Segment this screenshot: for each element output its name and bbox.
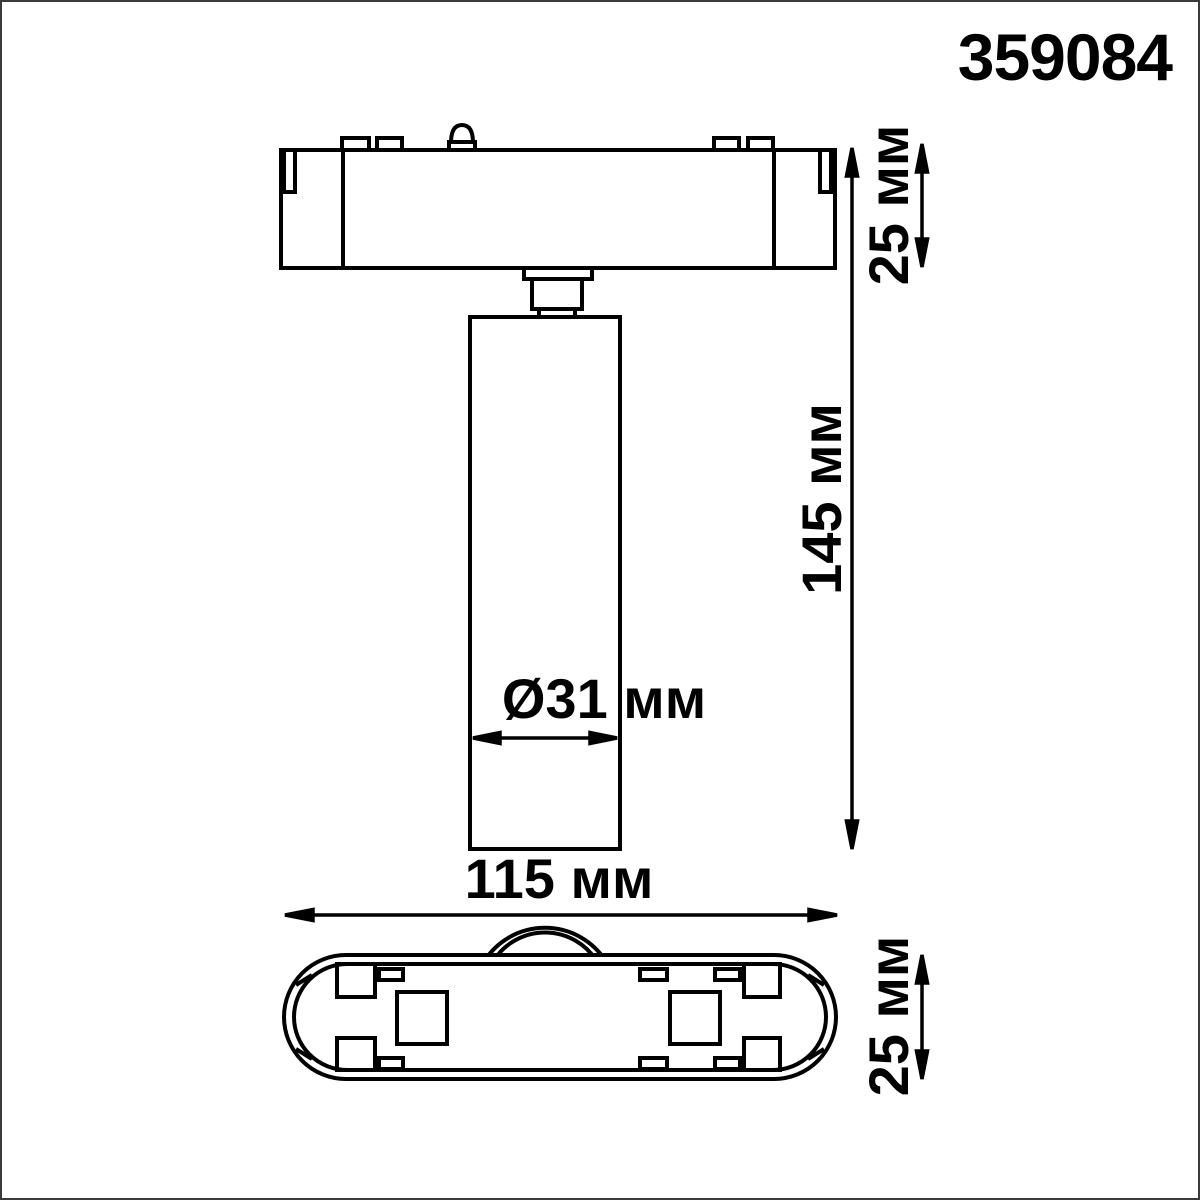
track-left-bracket xyxy=(281,150,343,268)
dimension-base-length xyxy=(285,910,837,921)
base-outline-outer xyxy=(284,955,836,1079)
dim-label-fixture-height: 145 мм xyxy=(794,379,850,619)
product-code: 359084 xyxy=(958,24,1172,90)
connector-block xyxy=(532,279,582,309)
diagram-canvas: 359084 25 мм 145 мм Ø31 мм 115 мм 25 мм xyxy=(0,0,1200,1200)
technical-drawing xyxy=(2,2,1200,1200)
dim-label-base-height: 25 мм xyxy=(861,916,917,1116)
track-right-bracket xyxy=(774,150,835,268)
cylinder-body xyxy=(470,317,620,849)
arrowhead-left-icon xyxy=(285,910,313,921)
arrowhead-up-icon xyxy=(847,148,858,176)
dim-label-cylinder-diameter: Ø31 мм xyxy=(464,671,744,727)
bottom-view xyxy=(284,928,836,1079)
arrowhead-down-icon xyxy=(847,821,858,849)
arrowhead-right-icon xyxy=(809,910,837,921)
dim-label-track-height: 25 мм xyxy=(861,105,917,305)
track-main-body xyxy=(343,150,774,268)
front-view xyxy=(281,125,835,849)
dim-label-base-length: 115 мм xyxy=(409,851,709,907)
